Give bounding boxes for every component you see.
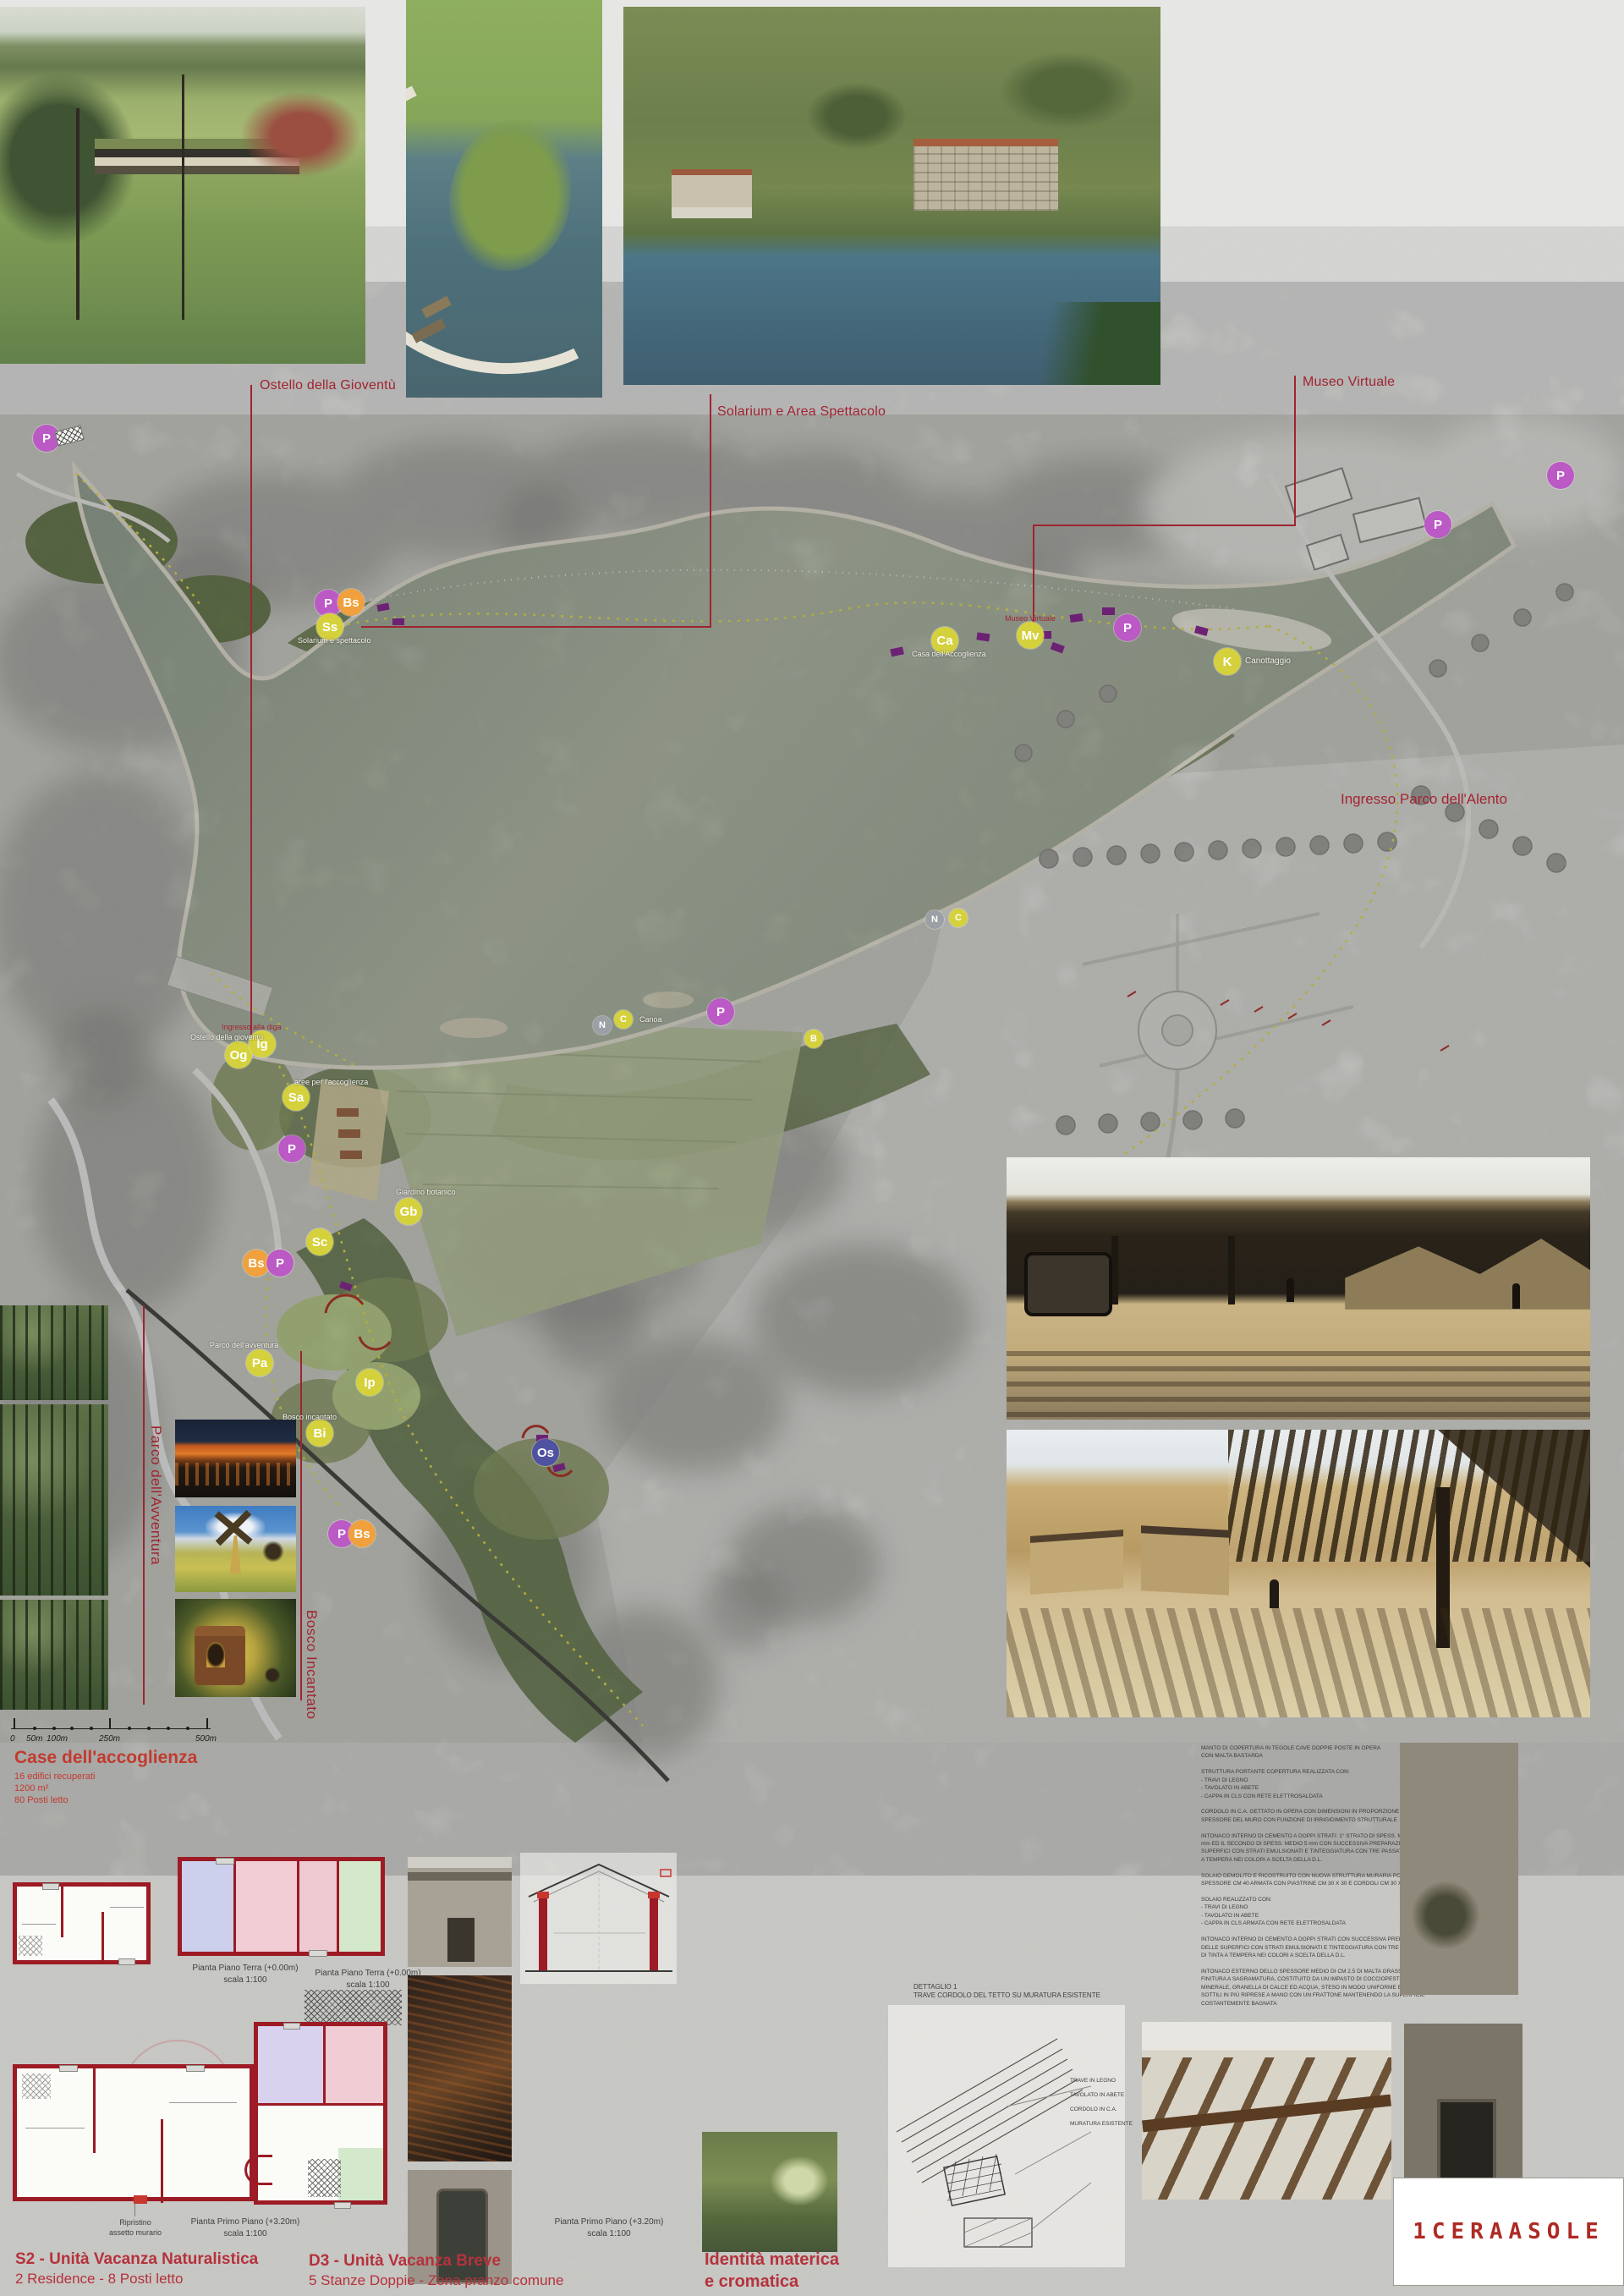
reflections xyxy=(175,1463,296,1486)
map-marker-n: N xyxy=(593,1016,612,1035)
scale-label: 250m xyxy=(99,1734,120,1744)
map-label: aree per l'accoglienza xyxy=(294,1078,368,1086)
photo-rust-detail xyxy=(408,1975,512,2161)
person-silhouette xyxy=(1287,1278,1294,1302)
door-arch xyxy=(206,1642,225,1667)
map-marker-bs: Bs xyxy=(348,1520,376,1547)
photo-stone-chapel xyxy=(408,1857,512,1967)
person-silhouette xyxy=(1270,1579,1279,1608)
map-marker-c: C xyxy=(949,909,968,927)
leader-line-museo xyxy=(1294,376,1296,526)
balcony-arc xyxy=(244,2155,272,2185)
person-silhouette xyxy=(1512,1283,1520,1309)
caption-museo: Museo Virtuale xyxy=(1303,375,1395,390)
photo-illuminated-forest xyxy=(175,1420,296,1497)
leader-line-bosco xyxy=(300,1351,302,1700)
tree-blob xyxy=(1000,52,1135,129)
label-parco-avventura: Parco dell'Avventura xyxy=(147,1425,164,1565)
map-marker-parking: P xyxy=(707,998,734,1025)
pod-volume xyxy=(1024,1252,1113,1316)
d3-subtitle: 5 Stanze Doppie - Zona pranzo comune xyxy=(309,2272,563,2289)
logo-text: 1CERAASOLE xyxy=(1413,2219,1605,2244)
map-marker-parco-avventura: Pa xyxy=(246,1349,273,1376)
column xyxy=(1228,1236,1235,1305)
map-label: Giardino botanico xyxy=(396,1188,456,1196)
angled-roofs xyxy=(1345,1231,1590,1310)
map-label: Ostello della gioventù xyxy=(190,1033,263,1041)
photo-gingerbread-house xyxy=(175,1599,296,1697)
leader-line-museo xyxy=(1034,525,1296,526)
map-marker-accoglienza: Sa xyxy=(283,1084,310,1111)
photo-ropes-course xyxy=(0,1305,108,1400)
plan-d3-ground xyxy=(178,1857,385,1956)
beams xyxy=(1142,2057,1391,2200)
leader-line-ostello xyxy=(250,385,252,1035)
roof-beam-detail-drawing xyxy=(888,2005,1125,2267)
presentation-board: Ostello della Gioventù Solarium e Area S… xyxy=(0,0,1624,2296)
column xyxy=(1111,1236,1118,1305)
map-marker-parking: P xyxy=(1424,511,1451,538)
plan-s2-first xyxy=(13,2064,254,2201)
white-wall xyxy=(672,207,752,218)
streaks xyxy=(408,1975,512,2161)
detail-caption: DETTAGLIO 1 TRAVE CORDOLO DEL TETTO SU M… xyxy=(913,1983,1108,2001)
map-marker-museo-virtuale: Mv xyxy=(1017,622,1044,649)
d3-title: D3 - Unità Vacanza Breve xyxy=(309,2252,501,2271)
butterfly-mill xyxy=(262,1541,284,1563)
photo-garden xyxy=(702,2132,837,2252)
accoglienza-line: 16 edifici recuperati xyxy=(14,1771,95,1782)
photo-wood-ceiling xyxy=(1142,2022,1391,2200)
map-label: Solarium e spettacolo xyxy=(298,636,371,645)
map-marker-b: B xyxy=(804,1030,823,1048)
tree-blob xyxy=(806,82,908,150)
cabin xyxy=(1030,1530,1123,1596)
scale-label: 500m xyxy=(195,1734,217,1744)
building-section-drawing xyxy=(520,1853,677,1984)
map-marker-parking: P xyxy=(1114,614,1141,641)
map-label: Canottaggio xyxy=(1245,656,1291,666)
label-bosco-incantato: Bosco Incantato xyxy=(303,1610,320,1719)
hatched-area xyxy=(304,1990,402,2025)
plan-caption-line: scala 1:100 xyxy=(169,2228,321,2240)
map-marker-bs: Bs xyxy=(337,589,365,616)
door xyxy=(447,1918,475,1962)
identity-title: Identità materica e cromatica xyxy=(705,2249,839,2293)
scale-label: 50m xyxy=(26,1734,42,1744)
photo-solarium-render xyxy=(406,0,602,398)
ground-shadows xyxy=(1007,1351,1590,1420)
scale-label: 0 xyxy=(10,1734,15,1744)
plan-d3-first xyxy=(254,2022,387,2205)
leader-line-solarium xyxy=(361,626,711,628)
map-marker-n: N xyxy=(925,910,944,929)
map-marker-giardino-botanico: Gb xyxy=(395,1198,422,1225)
children-figures xyxy=(265,1667,280,1683)
plan-caption-line: scala 1:100 xyxy=(533,2228,685,2240)
map-label: Casa dell'Accoglienza xyxy=(912,650,986,658)
map-marker-parking: P xyxy=(1547,462,1574,489)
sapling-trunk xyxy=(76,108,80,320)
render-pergola-courtyard xyxy=(1007,1430,1590,1717)
map-marker-canottaggio: K xyxy=(1214,648,1241,675)
leader-line-avventura xyxy=(143,1305,145,1705)
map-marker-parking: P xyxy=(278,1135,305,1162)
leader-line-solarium xyxy=(710,394,711,628)
plan-caption: Pianta Primo Piano (+3.20m) scala 1:100 xyxy=(169,2216,321,2239)
curved-path xyxy=(406,27,602,398)
plan-caption: Pianta Primo Piano (+3.20m) scala 1:100 xyxy=(533,2216,685,2239)
leader-line-museo xyxy=(1033,525,1034,624)
stone-building-large xyxy=(913,139,1058,211)
scale-label: 100m xyxy=(47,1734,68,1744)
render-canopy-building xyxy=(1007,1157,1590,1420)
map-label: Canoa xyxy=(639,1015,662,1024)
caption-solarium: Solarium e Area Spettacolo xyxy=(717,404,886,420)
technical-specs-text: MANTO DI COPERTURA IN TEGOLE CAVE DOPPIE… xyxy=(1201,1744,1431,2008)
s2-subtitle: 2 Residence - 8 Posti letto xyxy=(15,2271,183,2288)
photo-ropes-course xyxy=(0,1600,108,1710)
red-tree xyxy=(242,92,360,177)
accoglienza-line: 80 Posti letto xyxy=(14,1795,69,1805)
s2-title: S2 - Unità Vacanza Naturalistica xyxy=(15,2250,258,2269)
map-label: Parco dell'avventura xyxy=(210,1341,278,1349)
photo-stone-wall xyxy=(1400,1743,1518,1995)
map-marker-ip: Ip xyxy=(356,1369,383,1396)
photo-windmill-painting xyxy=(175,1506,296,1592)
photo-ostello-render xyxy=(0,7,365,364)
ground-shadows xyxy=(1007,1608,1590,1717)
map-marker-parking: P xyxy=(266,1250,294,1277)
plan-s2-ground xyxy=(13,1882,151,1964)
moss xyxy=(1412,1881,1479,1949)
map-label: Ingresso alla diga xyxy=(222,1023,282,1031)
accoglienza-line: 1200 m² xyxy=(14,1783,48,1793)
logo-plate: 1CERAASOLE xyxy=(1393,2178,1624,2286)
eave xyxy=(408,1872,512,1881)
flowering-shrub xyxy=(770,2156,829,2206)
map-label: Museo Virtuale xyxy=(1005,614,1056,623)
accoglienza-title: Case dell'accoglienza xyxy=(14,1748,197,1768)
map-marker-bosco-incantato: Bi xyxy=(306,1420,333,1447)
cabin xyxy=(1141,1525,1229,1595)
map-marker-canoa: C xyxy=(614,1010,633,1029)
ripristino-leader xyxy=(134,2203,135,2216)
map-marker-scuola: Sc xyxy=(306,1228,333,1255)
entrance-label: Ingresso Parco dell'Alento xyxy=(1341,791,1507,808)
caption-ostello: Ostello della Gioventù xyxy=(260,378,396,393)
map-marker-os: Os xyxy=(532,1439,559,1466)
reeds xyxy=(1000,302,1161,385)
plan-caption-line: Pianta Primo Piano (+3.20m) xyxy=(169,2216,321,2228)
ripristino-patch xyxy=(134,2195,147,2204)
pergola-beams xyxy=(1228,1430,1590,1562)
photo-ropes-course xyxy=(0,1404,108,1596)
sapling-trunk xyxy=(182,74,184,320)
photo-museo-render xyxy=(623,7,1160,385)
plan-caption-line: Pianta Primo Piano (+3.20m) xyxy=(533,2216,685,2228)
